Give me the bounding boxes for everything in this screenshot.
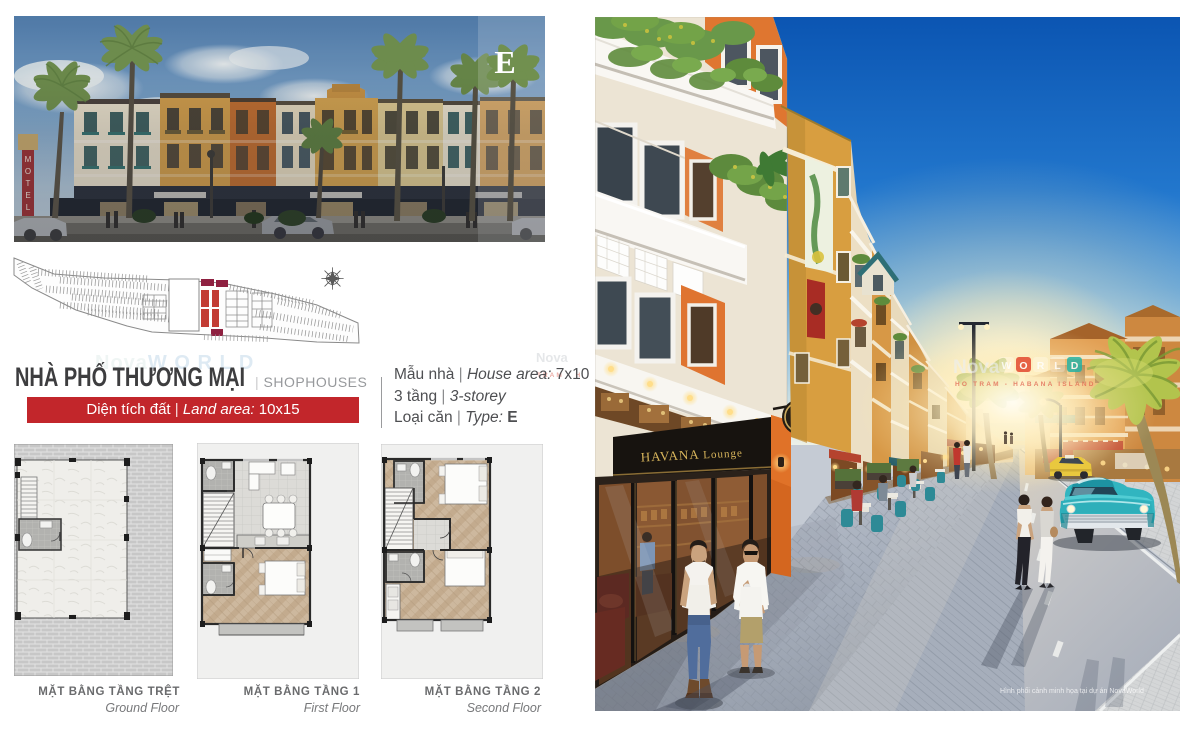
svg-text:D: D [1071, 360, 1079, 372]
svg-text:Hình phối cảnh minh họa tại dự: Hình phối cảnh minh họa tại dự án NovaWo… [1000, 686, 1144, 695]
svg-text:W: W [1002, 360, 1012, 372]
svg-text:E: E [494, 44, 515, 80]
svg-text:R: R [1037, 360, 1045, 372]
svg-text:HO TRAM - HABANA ISLAND: HO TRAM - HABANA ISLAND [955, 381, 1096, 388]
svg-text:O: O [1019, 360, 1027, 372]
svg-text:L: L [1054, 360, 1061, 372]
svg-text:Nova: Nova [953, 357, 1000, 378]
